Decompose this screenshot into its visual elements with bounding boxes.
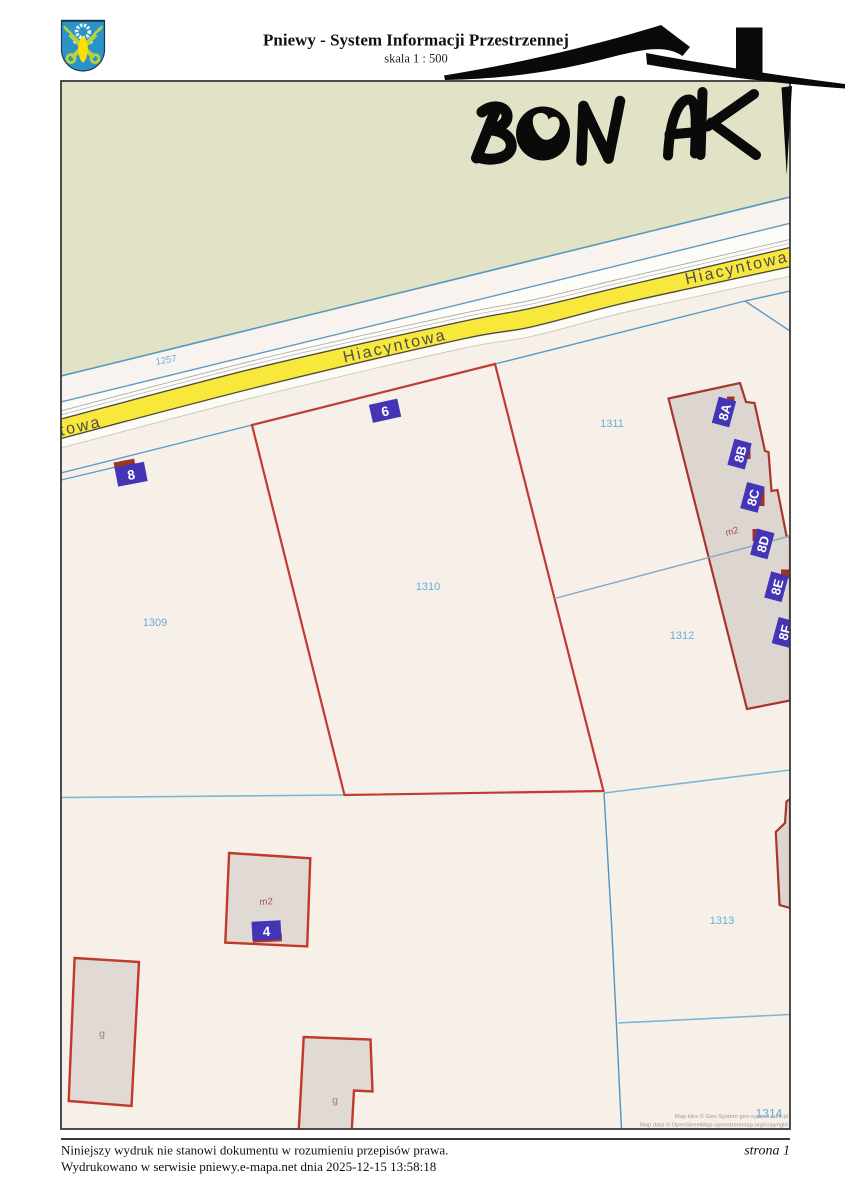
svg-text:Wydrukowano w serwisie pniewy.: Wydrukowano w serwisie pniewy.e-mapa.net… [61,1159,436,1174]
svg-text:1313: 1313 [710,915,734,927]
svg-text:1311: 1311 [600,418,624,430]
svg-text:g: g [332,1095,338,1107]
svg-text:1312: 1312 [670,630,694,642]
svg-text:m2: m2 [259,896,273,908]
svg-text:Map tiles © Geo-System geo-sys: Map tiles © Geo-System geo-system.com.pl [675,1113,788,1120]
svg-text:1309: 1309 [143,617,167,629]
svg-text:1310: 1310 [416,581,440,593]
svg-text:4: 4 [262,924,271,939]
svg-text:8F: 8F [775,623,793,642]
svg-text:skala 1 : 500: skala 1 : 500 [384,52,448,66]
svg-text:Pniewy - System Informacji Prz: Pniewy - System Informacji Przestrzennej [263,31,569,50]
svg-text:g: g [99,1028,105,1040]
svg-text:Map data © OpenStreetMap opens: Map data © OpenStreetMap openstreetmap.o… [640,1122,788,1129]
svg-text:strona 1: strona 1 [744,1144,790,1159]
svg-text:Niniejszy wydruk nie stanowi d: Niniejszy wydruk nie stanowi dokumentu w… [61,1143,448,1158]
